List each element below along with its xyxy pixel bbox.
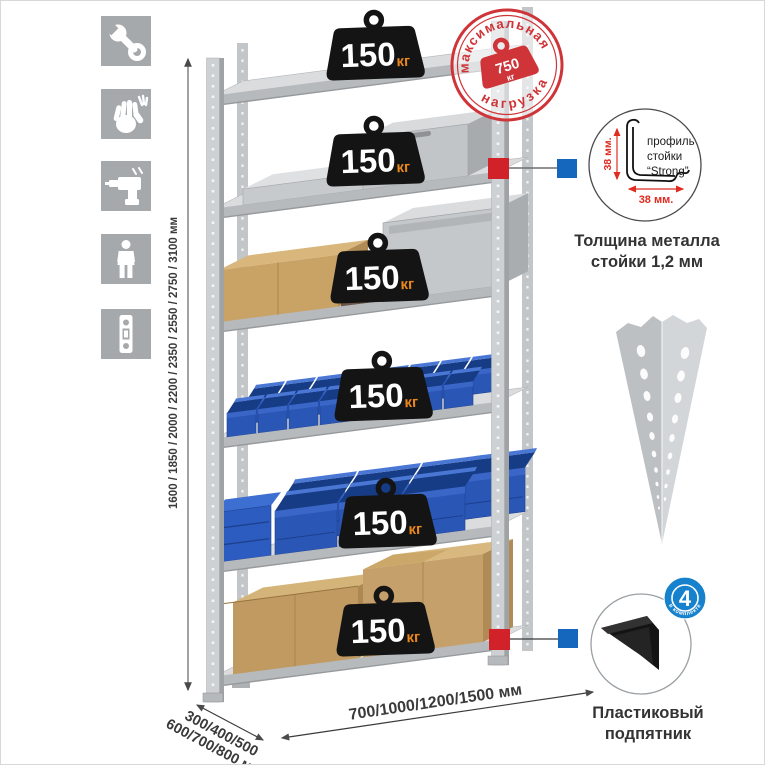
- callout-red-square: [489, 629, 510, 650]
- width-dimension: 700/1000/1200/1500 мм: [282, 681, 593, 738]
- drill-icon: [101, 161, 151, 211]
- callout-bottom: [489, 629, 578, 650]
- foot-detail-circle: 4 в комплекте: [591, 577, 706, 694]
- callout-blue-square: [557, 159, 577, 178]
- quantity-number: 4: [679, 586, 692, 611]
- height-dimension-label: 1600 / 1850 / 2000 / 2200 / 2350 / 2550 …: [168, 217, 180, 509]
- depth-dimension: 300/400/500 600/700/800 мм: [163, 702, 272, 765]
- profile-caption-line2: стойки 1,2 мм: [591, 253, 703, 271]
- profile-caption-line1: Толщина металла: [574, 232, 720, 250]
- person-icon: [101, 234, 151, 284]
- width-dimension-label: 700/1000/1200/1500 мм: [348, 681, 524, 723]
- height-dimension: 1600 / 1850 / 2000 / 2200 / 2350 / 2550 …: [168, 59, 188, 690]
- profile-vertical-dim: 38 мм.: [602, 137, 614, 170]
- profile-label-2: стойки: [647, 151, 682, 163]
- infographic-canvas: 150 кг: [1, 1, 765, 765]
- callout-red-square: [488, 158, 509, 179]
- foot-caption-line2: подпятник: [605, 725, 692, 743]
- quantity-badge: 4 в комплекте: [664, 577, 706, 619]
- closed-crate: [215, 492, 281, 563]
- wrench-icon: [101, 16, 151, 66]
- upright-post-image: [616, 315, 707, 544]
- foot-caption-line1: Пластиковый: [592, 704, 703, 722]
- rack-foot: [488, 656, 508, 665]
- profile-detail-circle: 38 мм. 38 мм. профиль стойки “Strong”: [589, 109, 701, 221]
- weight-badge: [333, 352, 433, 422]
- weight-badge: [325, 11, 425, 81]
- level-icon: [101, 309, 151, 359]
- product-infographic: 150 кг: [0, 0, 765, 765]
- max-load-stamp: максимальная нагрузка 750 кг: [438, 1, 575, 134]
- rack-foot: [203, 693, 223, 702]
- profile-label-3: “Strong”: [647, 166, 689, 178]
- sidebar-icons: [101, 16, 151, 359]
- callout-blue-square: [558, 629, 578, 648]
- profile-label-1: профиль: [647, 136, 695, 148]
- profile-horizontal-dim: 38 мм.: [639, 194, 674, 206]
- gloves-icon: [101, 89, 151, 139]
